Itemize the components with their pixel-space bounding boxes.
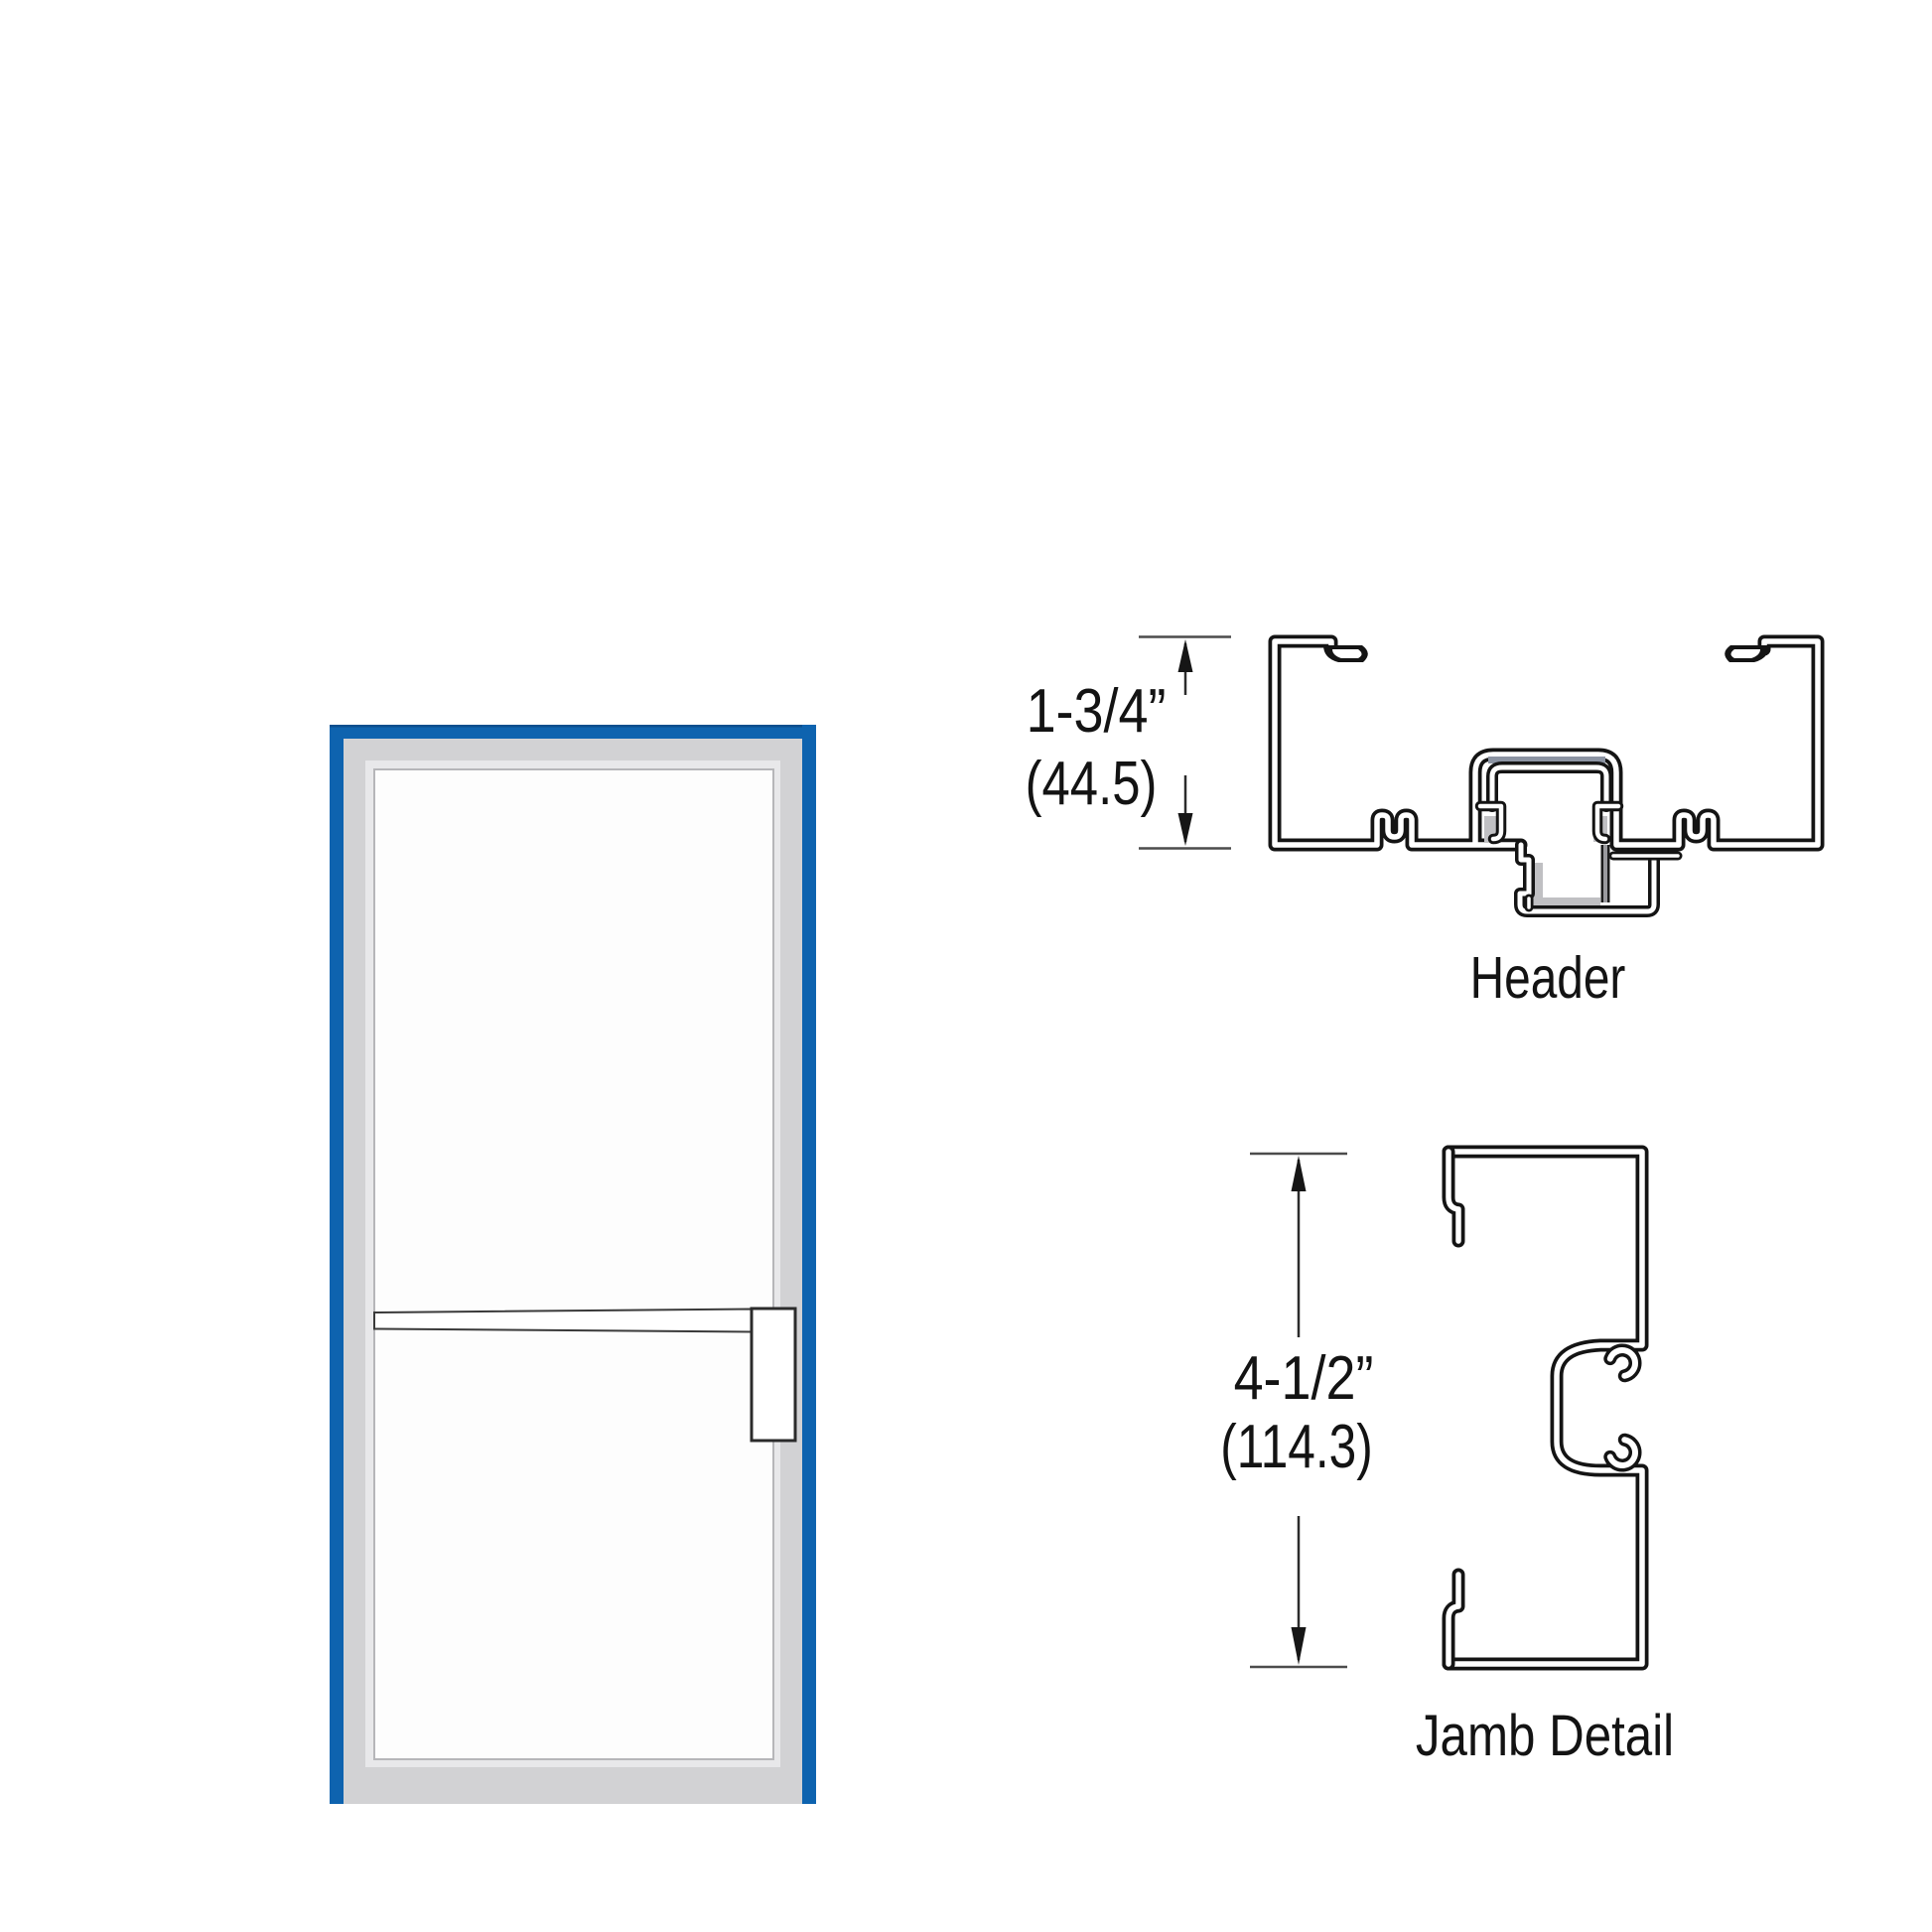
- svg-text:4-1/2”: 4-1/2”: [1234, 1344, 1374, 1413]
- svg-text:(44.5): (44.5): [1026, 750, 1158, 818]
- svg-text:Header: Header: [1470, 945, 1626, 1011]
- svg-text:1-3/4”: 1-3/4”: [1027, 677, 1167, 746]
- svg-text:Jamb Detail: Jamb Detail: [1416, 1704, 1674, 1768]
- svg-text:(114.3): (114.3): [1220, 1412, 1372, 1481]
